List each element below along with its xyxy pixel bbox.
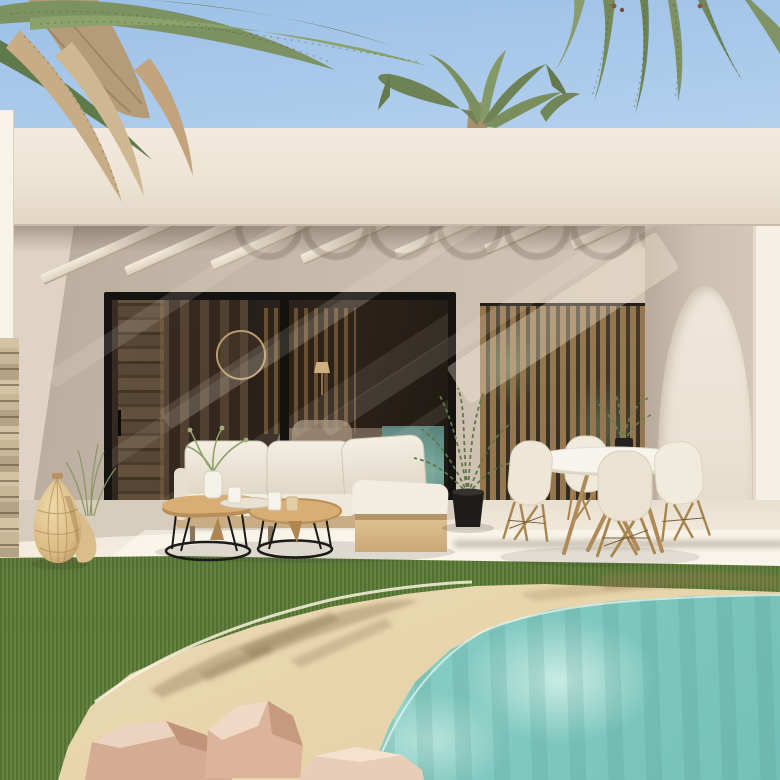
villa-render [0,0,780,780]
mug [268,492,281,510]
dining-chair [653,440,710,542]
lounge-area [155,426,455,563]
dining-chair [597,451,655,557]
cup [228,487,241,503]
lantern-knob [52,473,63,479]
dining-chair [503,439,556,542]
palm-shadows-on-sand [150,571,780,698]
vase [204,471,222,498]
candle [286,497,298,511]
dining-area [500,396,710,567]
waterline [372,595,780,778]
palm-dates [612,4,617,9]
rattan-lantern [32,444,116,570]
pool-rocks [85,701,424,780]
scene-foreground [0,0,780,780]
plant-pot [452,492,484,527]
palm-fronds-right [556,0,780,114]
palm-fronds-left [0,0,428,202]
